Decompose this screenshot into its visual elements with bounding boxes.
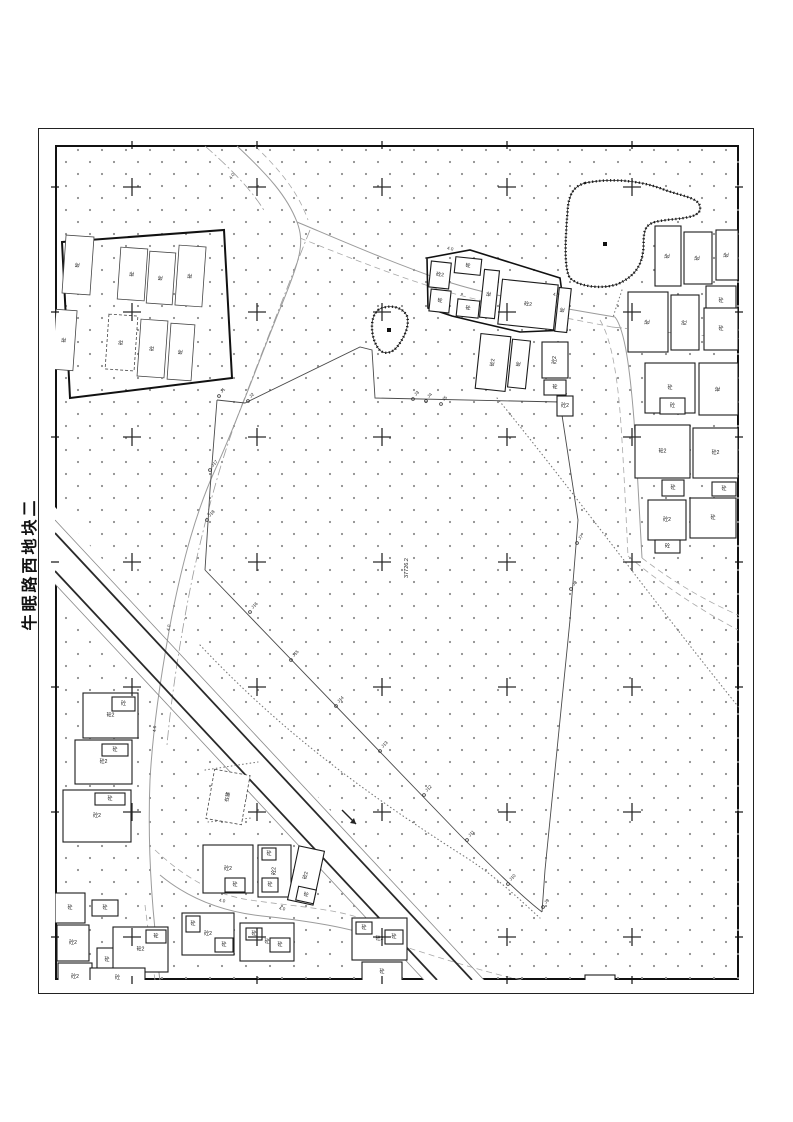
road-width-label: 4.0 bbox=[152, 725, 158, 732]
building-label: 砼 bbox=[718, 325, 723, 332]
building-label: 砼 bbox=[723, 252, 730, 257]
building: 砼 bbox=[270, 938, 290, 952]
building: 砼 bbox=[105, 314, 138, 371]
building: 砼 bbox=[456, 299, 480, 318]
building-label: 砼 bbox=[552, 384, 557, 391]
building-label: 砼2 bbox=[436, 271, 445, 279]
building-outline bbox=[540, 982, 582, 998]
building: 砼 bbox=[454, 257, 482, 276]
building-label: 砼 bbox=[515, 361, 522, 367]
building-label: 砼 bbox=[115, 974, 120, 981]
building-label: 砼2 bbox=[524, 300, 533, 308]
building: 砼 bbox=[690, 498, 736, 538]
building-label: 砼 bbox=[190, 920, 195, 927]
pond-large-center-dot bbox=[603, 242, 607, 246]
building-label: 砼 bbox=[121, 700, 126, 707]
building: 砼 bbox=[146, 930, 166, 943]
building: 砼 bbox=[215, 938, 233, 952]
building: 砼2 bbox=[648, 500, 686, 540]
building-label: 砼 bbox=[221, 941, 226, 948]
building: 砼 bbox=[699, 363, 738, 415]
road-width-label: 4.0 bbox=[553, 292, 560, 298]
building-label: 砼 bbox=[437, 297, 443, 304]
building-label: 砼2 bbox=[489, 358, 497, 367]
map-canvas: J1J2J3J4J5J6J7J8J9J10J11J12J13J14J15J16J… bbox=[0, 0, 793, 1122]
building-label: 砼2 bbox=[69, 939, 77, 946]
building-label: 砼 bbox=[559, 307, 566, 313]
building: 砼 bbox=[356, 922, 372, 934]
building-label: 砼 bbox=[74, 262, 81, 267]
building-label: 砼 bbox=[694, 255, 701, 260]
building: 砼 bbox=[429, 289, 451, 313]
building-label: 砼 bbox=[718, 297, 723, 304]
building-label: 砼2 bbox=[659, 448, 667, 455]
building-label: 砼 bbox=[670, 484, 675, 491]
building-label: 砼 bbox=[485, 291, 492, 297]
building: 砼 bbox=[296, 886, 317, 903]
building: 砼 bbox=[704, 308, 738, 350]
building-label: 砼 bbox=[266, 850, 271, 857]
building: 砼2 bbox=[429, 261, 452, 289]
building-label: 砼 bbox=[379, 968, 384, 975]
road-width-label: 4.0 bbox=[219, 898, 226, 904]
building-label: 砼 bbox=[391, 933, 396, 940]
building-label: 砼 bbox=[465, 304, 471, 311]
building: 砼2 bbox=[693, 428, 738, 478]
building-label: 砼2 bbox=[107, 712, 115, 719]
building: 砼 bbox=[716, 230, 738, 280]
building: 砼 bbox=[628, 292, 668, 352]
building-label: 砼 bbox=[721, 485, 726, 492]
building: 砼 bbox=[102, 744, 128, 756]
building-label: 砼 bbox=[112, 746, 117, 753]
building: 砼2 bbox=[475, 334, 511, 392]
building-label: 砼 bbox=[715, 386, 722, 391]
building: 砼 bbox=[262, 848, 276, 860]
building: 砼 bbox=[175, 245, 206, 307]
building-label: 砼2 bbox=[224, 865, 232, 872]
building-label: 砼 bbox=[128, 271, 135, 276]
building-label: 砼2 bbox=[663, 516, 671, 523]
building-label: 砼 bbox=[177, 349, 184, 354]
building: 砼2 bbox=[58, 963, 92, 991]
parcel-area-label: 37726.2 bbox=[404, 558, 410, 578]
building: 砼 bbox=[655, 226, 681, 286]
pond-small-center-dot bbox=[387, 328, 391, 332]
building: 砼 bbox=[671, 295, 699, 350]
building: 砼 bbox=[246, 928, 262, 940]
building-label: 砼 bbox=[667, 384, 672, 391]
building: 砼 bbox=[92, 900, 118, 916]
building: 砼 bbox=[112, 697, 135, 711]
building: 砼 bbox=[52, 309, 77, 370]
building: 砼 bbox=[712, 482, 736, 496]
building-label: 砼 bbox=[670, 402, 675, 409]
building-label: 砼 bbox=[267, 881, 272, 888]
building-label: 砼 bbox=[665, 543, 670, 550]
building: 砼2 bbox=[57, 925, 89, 961]
building: 砼 bbox=[262, 878, 278, 892]
building-label: 砼 bbox=[102, 904, 107, 911]
building: 砼 bbox=[167, 323, 195, 381]
building-label: 砼2 bbox=[561, 402, 569, 409]
building-label: 砼 bbox=[597, 981, 602, 988]
building: 砼 bbox=[146, 251, 176, 305]
building-label: 砼 bbox=[264, 938, 269, 945]
building-label: 砼 bbox=[153, 933, 158, 940]
building: 砼 bbox=[585, 975, 615, 995]
building-label: 砼 bbox=[664, 253, 671, 258]
building: 砼 bbox=[225, 878, 245, 892]
building: 砼 bbox=[660, 398, 685, 414]
building-label: 砼 bbox=[104, 956, 109, 963]
building: 砼 bbox=[655, 540, 680, 553]
building-label: 砼 bbox=[60, 337, 67, 342]
building-label: 砼 bbox=[361, 924, 366, 931]
building: 砼 bbox=[62, 235, 94, 295]
building-label: 砼 bbox=[644, 319, 651, 324]
building-label: 砼2 bbox=[137, 946, 145, 953]
building-label: 砼 bbox=[277, 941, 282, 948]
building: 砼 bbox=[540, 982, 582, 998]
building-label: 砼 bbox=[107, 795, 112, 802]
building-label: 砼 bbox=[117, 340, 124, 345]
road-width-label: 4.0 bbox=[279, 906, 286, 912]
building-label: 砼 bbox=[465, 262, 471, 269]
building: 砼 bbox=[662, 480, 684, 496]
building-label: 砼 bbox=[232, 881, 237, 888]
building-label: 砼 bbox=[251, 930, 256, 937]
building: 砼2 bbox=[635, 425, 690, 478]
building-label: 砼 bbox=[148, 346, 155, 351]
building-label: 砼2 bbox=[712, 449, 720, 456]
building-label: 砼2 bbox=[71, 973, 79, 980]
map-content: J1J2J3J4J5J6J7J8J9J10J11J12J13J14J15J16J… bbox=[52, 145, 745, 998]
building-label: 砼 bbox=[710, 514, 715, 521]
building-label: 砼2 bbox=[100, 758, 108, 765]
building: 砼 bbox=[55, 893, 85, 923]
building: 砼 bbox=[90, 968, 145, 988]
building-label: 砼2 bbox=[271, 867, 278, 875]
building: 砼 bbox=[137, 319, 168, 378]
building-label: 砼 bbox=[186, 273, 193, 278]
building: 砼2 bbox=[557, 396, 573, 416]
building-label: 砼 bbox=[558, 986, 563, 993]
building-label: 砼 bbox=[157, 275, 164, 280]
building-label: 砼 bbox=[681, 320, 688, 325]
building: 砼 bbox=[544, 380, 566, 395]
building: 砼 bbox=[95, 793, 125, 805]
building-outline bbox=[585, 975, 615, 995]
building-label: 砼2 bbox=[551, 356, 558, 364]
survey-sheet: 牛眠路西地块二 J1J2J3J4J5J6J7J8J9J10J11J12J13J1… bbox=[0, 0, 793, 1122]
building: 砼 bbox=[684, 232, 712, 284]
building: 砼2 bbox=[542, 342, 568, 378]
building-label: 砼2 bbox=[93, 812, 101, 819]
building: 砼 bbox=[186, 916, 200, 932]
building-label: 砼 bbox=[67, 904, 72, 911]
building-label: 砼2 bbox=[204, 930, 212, 937]
building: 砼 bbox=[117, 247, 148, 301]
